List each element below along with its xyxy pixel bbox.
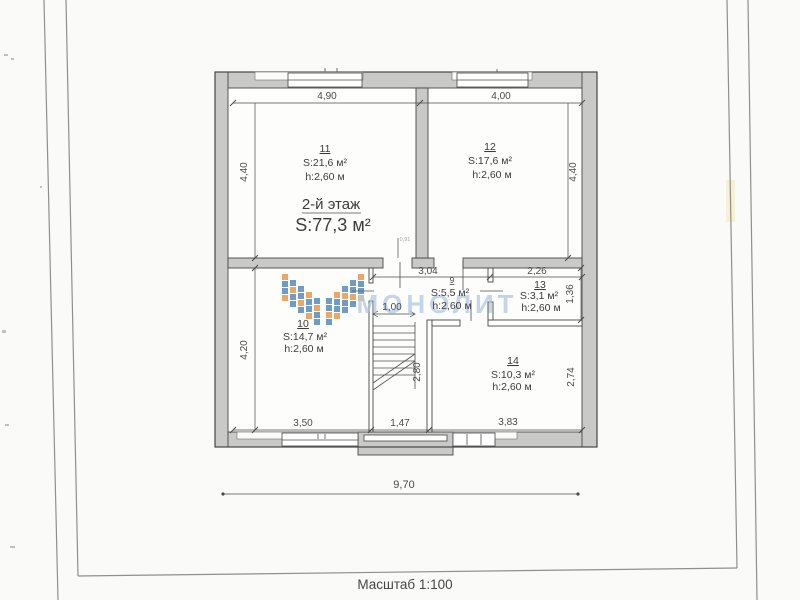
- dim-stair-width: 1,00: [382, 302, 402, 313]
- floor-plan-drawing: МОНОЛИТ 4,90 4,00 4,40 4,40 3,04 2,26 1,…: [0, 0, 800, 600]
- dim-right-upper: 4,40: [568, 162, 579, 182]
- dim-room14-depth: 2,74: [566, 367, 577, 387]
- dim-overall-width: 9,70: [393, 479, 414, 491]
- floor-title: 2-й этаж: [302, 196, 360, 213]
- dim-stair-depth: 2,80: [412, 362, 423, 382]
- dim-bottom-middle: 1,47: [390, 418, 410, 429]
- room-14-number: 14: [507, 355, 519, 367]
- room-9-area: S:5,5 м²: [431, 287, 470, 299]
- dim-room13-depth: 1,36: [565, 284, 576, 304]
- room-9-number: 9: [450, 276, 455, 285]
- room-12-height: h:2,60 м: [472, 169, 511, 181]
- room-9-height: h:2,60 м: [432, 300, 471, 312]
- room-11-area: S:21,6 м²: [303, 157, 347, 169]
- door-width-note: 0,91: [400, 237, 411, 243]
- room-12-number: 12: [484, 141, 496, 153]
- floor-total-area: S:77,3 м²: [295, 215, 370, 235]
- room-10-number: 10: [297, 318, 309, 330]
- room-14-area: S:10,3 м²: [491, 369, 535, 381]
- plan-walls: [215, 68, 597, 455]
- dim-top-right: 4,00: [491, 91, 511, 102]
- room-11-height: h:2,60 м: [305, 171, 344, 183]
- dim-hall-width: 3,04: [418, 266, 438, 277]
- dim-room13-width: 2,26: [527, 266, 547, 277]
- room-13-height: h:2,60 м: [521, 302, 560, 314]
- room-10-height: h:2,60 м: [284, 343, 323, 355]
- scale-label: Масштаб 1:100: [357, 577, 452, 592]
- room-13-area: S:3,1 м²: [520, 290, 559, 302]
- room-14-height: h:2,60 м: [492, 381, 531, 393]
- scanned-floor-plan-page: МОНОЛИТ 4,90 4,00 4,40 4,40 3,04 2,26 1,…: [0, 0, 800, 600]
- dim-left-lower: 4,20: [239, 340, 250, 360]
- dim-bottom-right: 3,83: [498, 417, 518, 428]
- room-12-area: S:17,6 м²: [468, 155, 512, 167]
- room-11-number: 11: [320, 143, 331, 155]
- dim-top-left: 4,90: [317, 91, 337, 102]
- scan-specks: [2, 54, 42, 548]
- dim-bottom-left: 3,50: [293, 418, 313, 429]
- dim-left-upper: 4,40: [239, 162, 250, 182]
- room-10-area: S:14,7 м²: [283, 331, 327, 343]
